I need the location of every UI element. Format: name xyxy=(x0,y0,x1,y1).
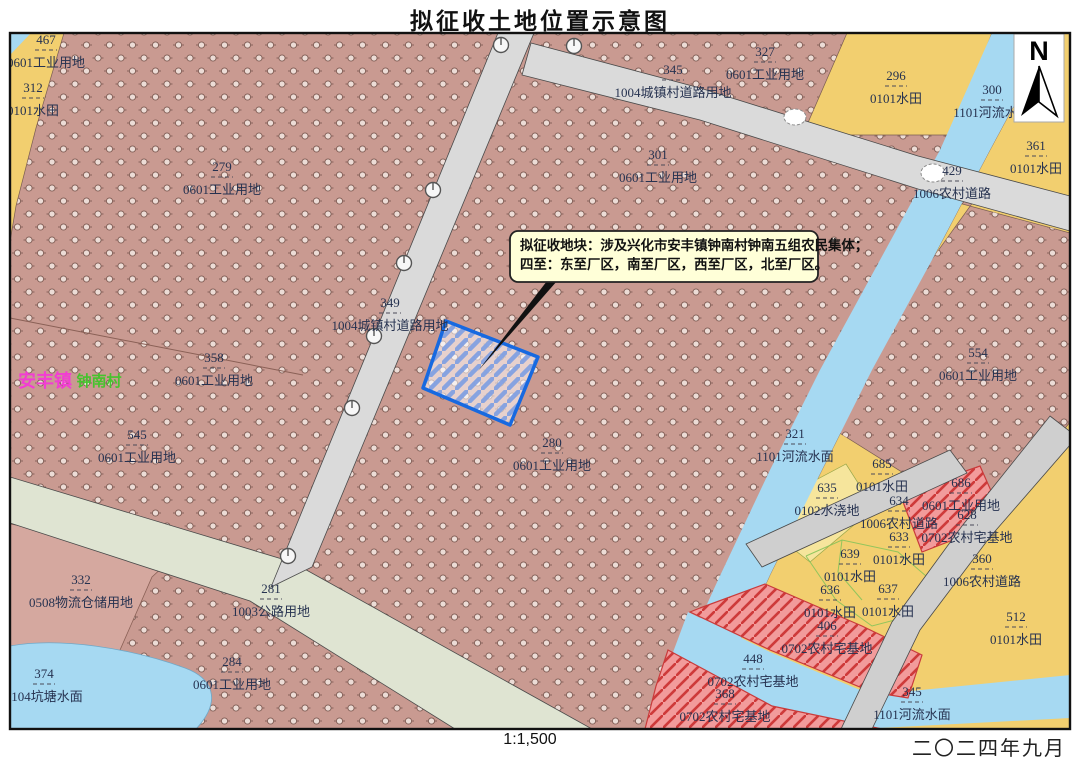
streetlight-icon xyxy=(426,183,441,198)
svg-text:0101水田: 0101水田 xyxy=(862,604,914,619)
svg-text:554: 554 xyxy=(968,345,988,360)
svg-text:636: 636 xyxy=(820,582,840,597)
streetlight-icon xyxy=(494,38,509,53)
map-canvas: 4670601工业用地3120101水田2790601工业用地3451004城镇… xyxy=(0,0,1080,764)
streetlight-icon xyxy=(567,39,582,54)
svg-text:0601工业用地: 0601工业用地 xyxy=(619,170,697,185)
svg-text:1101河流水面: 1101河流水面 xyxy=(873,707,951,722)
svg-text:349: 349 xyxy=(380,295,400,310)
annotation-line1: 拟征收地块：涉及兴化市安丰镇钟南村钟南五组农民集体； xyxy=(520,237,868,254)
streetlight-icon xyxy=(345,401,360,416)
annotation-callout: 拟征收地块：涉及兴化市安丰镇钟南村钟南五组农民集体； 四至：东至厂区，南至厂区，… xyxy=(510,231,868,282)
svg-text:0601工业用地: 0601工业用地 xyxy=(726,67,804,82)
svg-text:0102水浇地: 0102水浇地 xyxy=(794,503,859,518)
svg-text:1004城镇村道路用地: 1004城镇村道路用地 xyxy=(331,318,448,333)
svg-text:296: 296 xyxy=(886,68,906,83)
svg-text:0601工业用地: 0601工业用地 xyxy=(7,55,85,70)
svg-text:467: 467 xyxy=(36,32,56,47)
map-scale: 1:1,500 xyxy=(430,731,630,749)
svg-text:1104坑塘水面: 1104坑塘水面 xyxy=(5,689,83,704)
svg-text:0101水田: 0101水田 xyxy=(856,479,908,494)
svg-text:368: 368 xyxy=(715,686,735,701)
svg-text:360: 360 xyxy=(972,551,992,566)
svg-text:685: 685 xyxy=(872,456,892,471)
svg-text:0101水田: 0101水田 xyxy=(7,103,59,118)
svg-text:686: 686 xyxy=(951,475,971,490)
north-arrow: N xyxy=(1014,34,1064,122)
svg-text:0702农村宅基地: 0702农村宅基地 xyxy=(781,641,872,656)
svg-text:0601工业用地: 0601工业用地 xyxy=(939,368,1017,383)
place-label: 安丰镇 xyxy=(18,370,72,391)
svg-text:312: 312 xyxy=(23,80,43,95)
bridge-icon xyxy=(784,109,806,125)
svg-text:0601工业用地: 0601工业用地 xyxy=(98,450,176,465)
svg-text:634: 634 xyxy=(889,493,909,508)
svg-text:361: 361 xyxy=(1026,138,1046,153)
svg-text:429: 429 xyxy=(942,163,962,178)
svg-text:0101水田: 0101水田 xyxy=(990,632,1042,647)
svg-text:0601工业用地: 0601工业用地 xyxy=(175,373,253,388)
svg-text:300: 300 xyxy=(982,82,1002,97)
annotation-line2: 四至：东至厂区，南至厂区，西至厂区，北至厂区。 xyxy=(520,256,828,272)
svg-text:0101水田: 0101水田 xyxy=(873,552,925,567)
svg-text:301: 301 xyxy=(648,147,668,162)
svg-text:1004城镇村道路用地: 1004城镇村道路用地 xyxy=(614,85,731,100)
svg-text:281: 281 xyxy=(261,581,281,596)
place-label: 钟南村 xyxy=(76,372,121,390)
svg-text:0101水田: 0101水田 xyxy=(870,91,922,106)
svg-text:0702农村宅基地: 0702农村宅基地 xyxy=(921,530,1012,545)
svg-text:633: 633 xyxy=(889,529,909,544)
svg-text:280: 280 xyxy=(542,435,562,450)
svg-text:545: 545 xyxy=(127,427,147,442)
svg-text:279: 279 xyxy=(212,159,232,174)
svg-text:1101河流水面: 1101河流水面 xyxy=(756,449,834,464)
svg-text:358: 358 xyxy=(204,350,224,365)
svg-text:321: 321 xyxy=(785,426,805,441)
svg-text:512: 512 xyxy=(1006,609,1026,624)
svg-text:0601工业用地: 0601工业用地 xyxy=(513,458,591,473)
map-date: 二〇二四年九月 xyxy=(912,732,1066,761)
svg-text:1006农村道路: 1006农村道路 xyxy=(913,186,991,201)
svg-text:345: 345 xyxy=(902,684,922,699)
streetlight-icon xyxy=(281,549,296,564)
svg-text:448: 448 xyxy=(743,651,763,666)
svg-text:284: 284 xyxy=(222,654,242,669)
svg-text:0101水田: 0101水田 xyxy=(1010,161,1062,176)
streetlight-icon xyxy=(397,256,412,271)
svg-text:0601工业用地: 0601工业用地 xyxy=(193,677,271,692)
svg-text:327: 327 xyxy=(755,44,775,59)
svg-text:628: 628 xyxy=(957,507,977,522)
svg-text:639: 639 xyxy=(840,546,860,561)
svg-text:637: 637 xyxy=(878,581,898,596)
svg-text:1003公路用地: 1003公路用地 xyxy=(232,604,310,619)
north-label: N xyxy=(1029,36,1049,66)
svg-text:374: 374 xyxy=(34,666,54,681)
svg-text:1006农村道路: 1006农村道路 xyxy=(943,574,1021,589)
map-page: 拟征收土地位置示意图 xyxy=(0,0,1080,764)
svg-text:406: 406 xyxy=(817,618,837,633)
svg-text:0702农村宅基地: 0702农村宅基地 xyxy=(679,709,770,724)
svg-text:345: 345 xyxy=(663,62,683,77)
svg-text:635: 635 xyxy=(817,480,837,495)
svg-text:332: 332 xyxy=(71,572,91,587)
svg-text:0601工业用地: 0601工业用地 xyxy=(183,182,261,197)
svg-text:0508物流仓储用地: 0508物流仓储用地 xyxy=(29,595,133,610)
